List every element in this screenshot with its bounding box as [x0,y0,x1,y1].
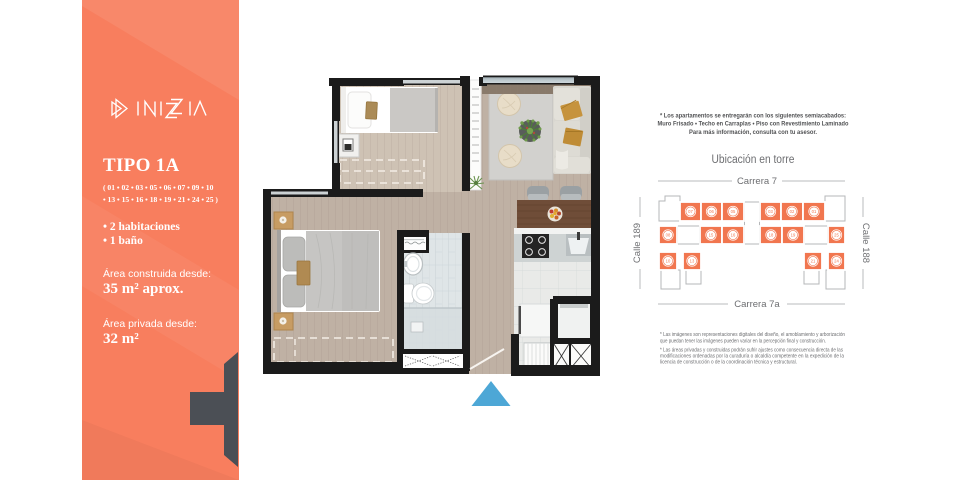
svg-text:que puedan tener las imágenes: que puedan tener las imágenes pueden var… [660,339,826,345]
svg-text:10: 10 [666,259,671,264]
svg-text:02: 02 [790,209,795,214]
svg-text:06: 06 [709,209,714,214]
svg-text:24: 24 [834,259,839,264]
svg-text:07: 07 [688,209,693,214]
svg-text:13: 13 [690,259,695,264]
svg-text:Muro Frisado • Techo en Carrap: Muro Frisado • Techo en Carraplas • Piso… [658,121,849,128]
svg-text:licencia de construcción o de: licencia de construcción o de la coordin… [660,360,797,366]
svg-text:21: 21 [811,259,816,264]
svg-text:05: 05 [731,209,736,214]
svg-text:18: 18 [769,233,774,238]
svg-text:Calle 188: Calle 188 [860,223,871,263]
svg-text:Ubicación en torre: Ubicación en torre [712,154,795,166]
svg-text:Para más información, consulta: Para más información, consulta con tu as… [689,129,817,136]
svg-text:Carrera 7: Carrera 7 [737,176,777,187]
svg-text:08: 08 [666,233,671,238]
svg-text:Carrera 7a: Carrera 7a [734,299,780,310]
svg-text:Calle 189: Calle 189 [632,223,643,263]
svg-text:01: 01 [812,209,817,214]
svg-text:25: 25 [834,233,839,238]
svg-text:15: 15 [709,233,714,238]
svg-text:19: 19 [791,233,796,238]
svg-text:16: 16 [731,233,736,238]
svg-text:* Las imágenes son representac: * Las imágenes son representaciones digi… [660,332,845,338]
svg-text:* Los apartamentos se entregar: * Los apartamentos se entregarán con los… [660,113,846,120]
svg-text:03: 03 [768,209,773,214]
